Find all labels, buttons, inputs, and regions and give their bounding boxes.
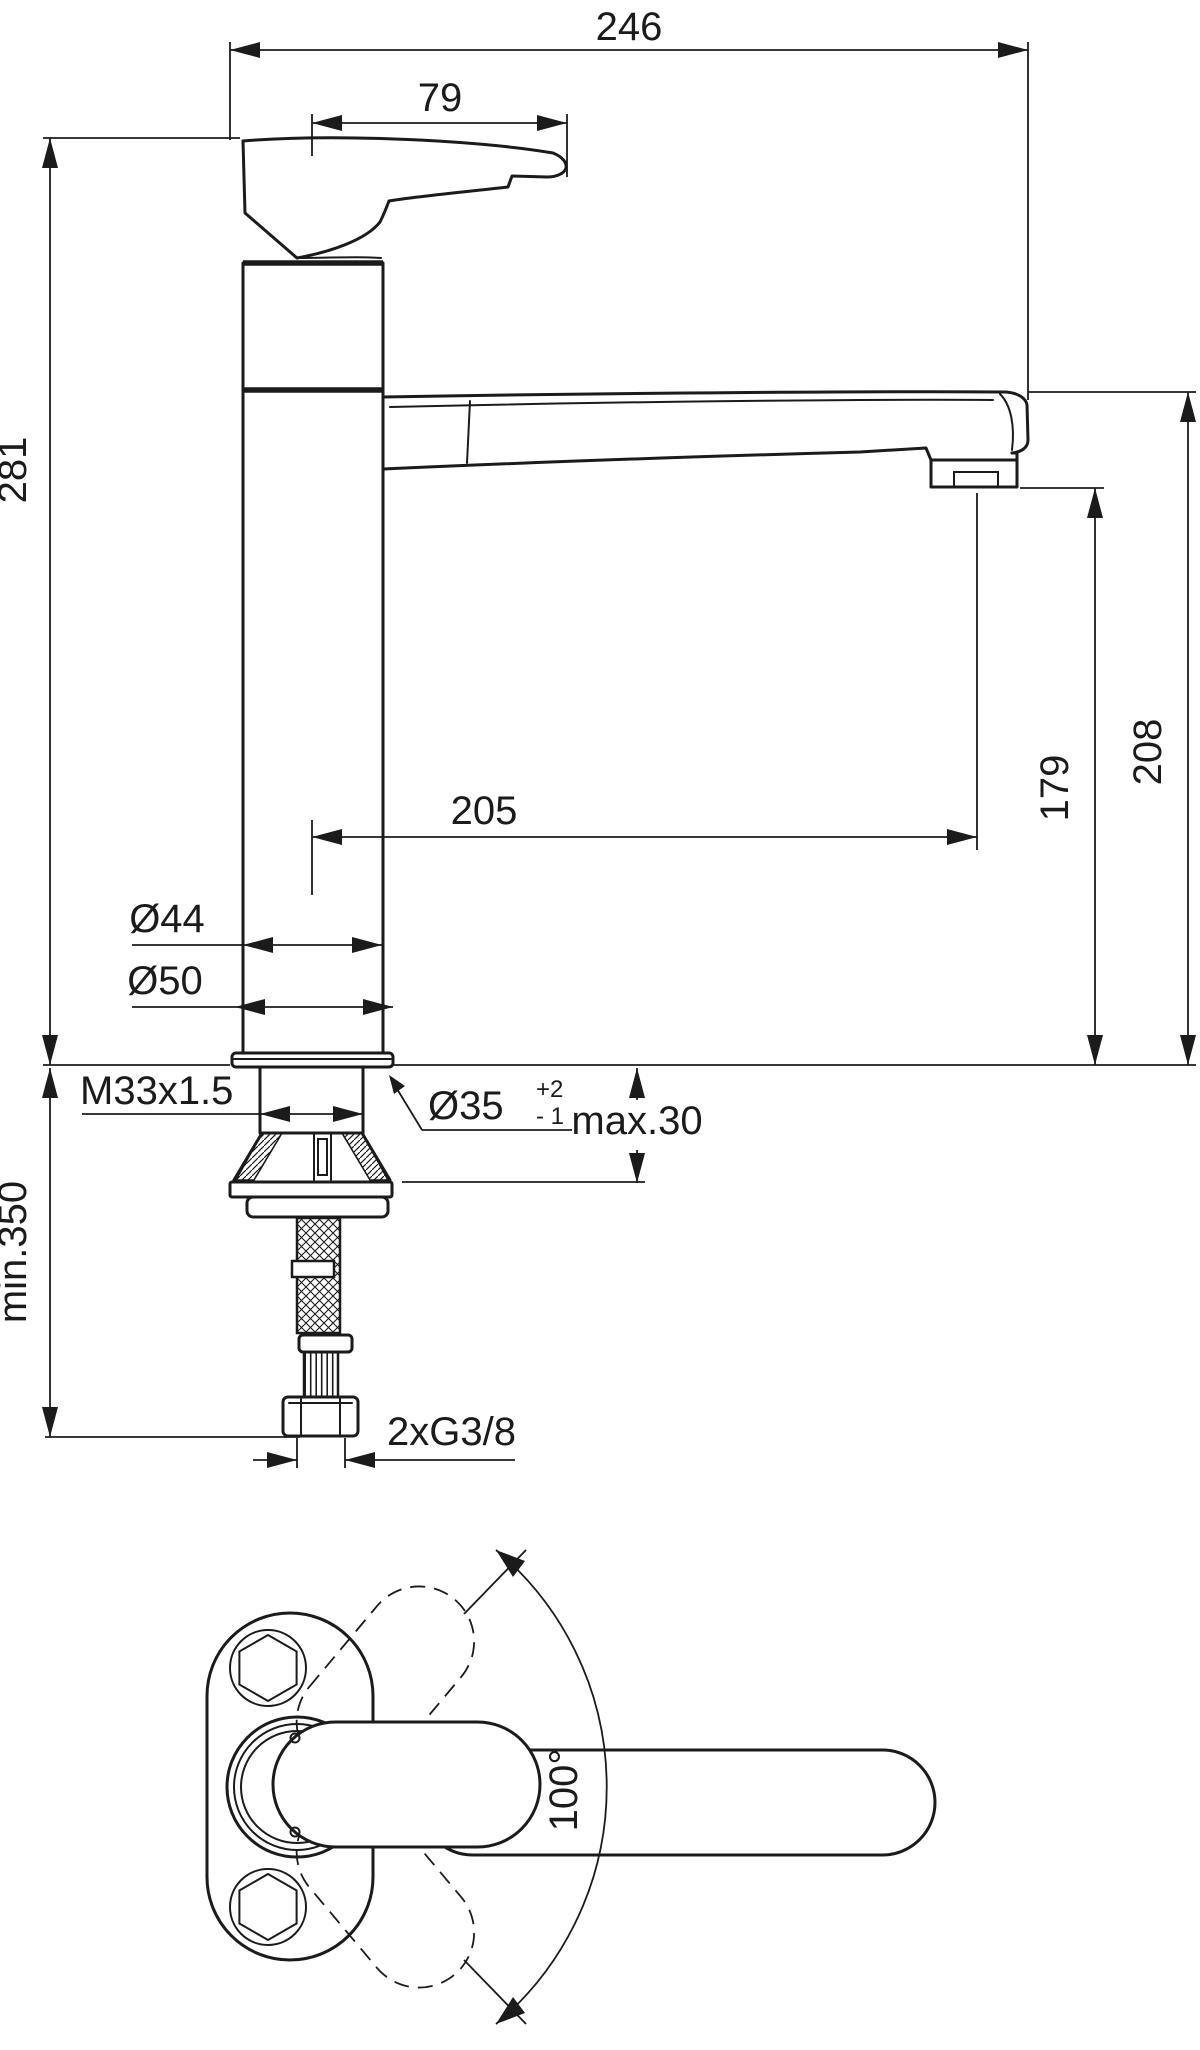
flexible-supply-hose <box>292 1218 352 1397</box>
spout-underside <box>383 448 931 469</box>
dim-hole-tol-minus: - 1 <box>536 1103 564 1130</box>
dim-thread-spec: M33x1.5 <box>80 1069 233 1113</box>
dimensions-side-view: 246 79 281 min.350 205 17 <box>0 5 1196 1468</box>
dim-aerator-height: 179 <box>1033 755 1077 822</box>
handle-lever-outline <box>243 138 566 201</box>
plan-lever <box>273 1722 540 1847</box>
side-view-faucet <box>230 138 1028 1436</box>
mounting-washer-plate <box>230 1182 392 1197</box>
dim-hole-tol-plus: +2 <box>536 1076 563 1103</box>
dim-body-height: 281 <box>0 437 35 504</box>
dim-spout-height: 208 <box>1126 719 1170 786</box>
dim-handle-length: 79 <box>418 76 463 120</box>
faucet-dimension-drawing: 246 79 281 min.350 205 17 <box>0 0 1200 2050</box>
spout-hub-seam <box>467 401 470 463</box>
dim-supply-connection: 2xG3/8 <box>387 1410 516 1454</box>
dim-overall-length: 246 <box>596 5 663 49</box>
plan-view-faucet: 100° <box>207 1550 935 2024</box>
spout-tip-inner-curve <box>1000 394 1013 450</box>
aerator-housing <box>931 453 1017 487</box>
aerator-nozzle <box>954 472 998 487</box>
fixing-claw-assembly <box>234 1133 390 1180</box>
g38-connection-nut <box>283 1397 358 1436</box>
handle-dome-outline <box>243 141 389 258</box>
dim-swivel-angle: 100° <box>542 1749 586 1832</box>
dim-deck-thickness: max.30 <box>571 1099 702 1143</box>
technical-drawing-page: 246 79 281 min.350 205 17 <box>0 0 1200 2050</box>
dim-spout-reach: 205 <box>451 789 518 833</box>
dim-base-diameter: Ø50 <box>127 959 203 1003</box>
dim-body-diameter: Ø44 <box>129 897 205 941</box>
spout-inner-top-line <box>390 400 993 407</box>
dome-skirt-line <box>297 257 381 258</box>
mounting-washer-lower <box>247 1197 388 1217</box>
dim-hole-diameter: Ø35 <box>428 1084 504 1128</box>
dim-min-clearance: min.350 <box>0 1181 35 1323</box>
